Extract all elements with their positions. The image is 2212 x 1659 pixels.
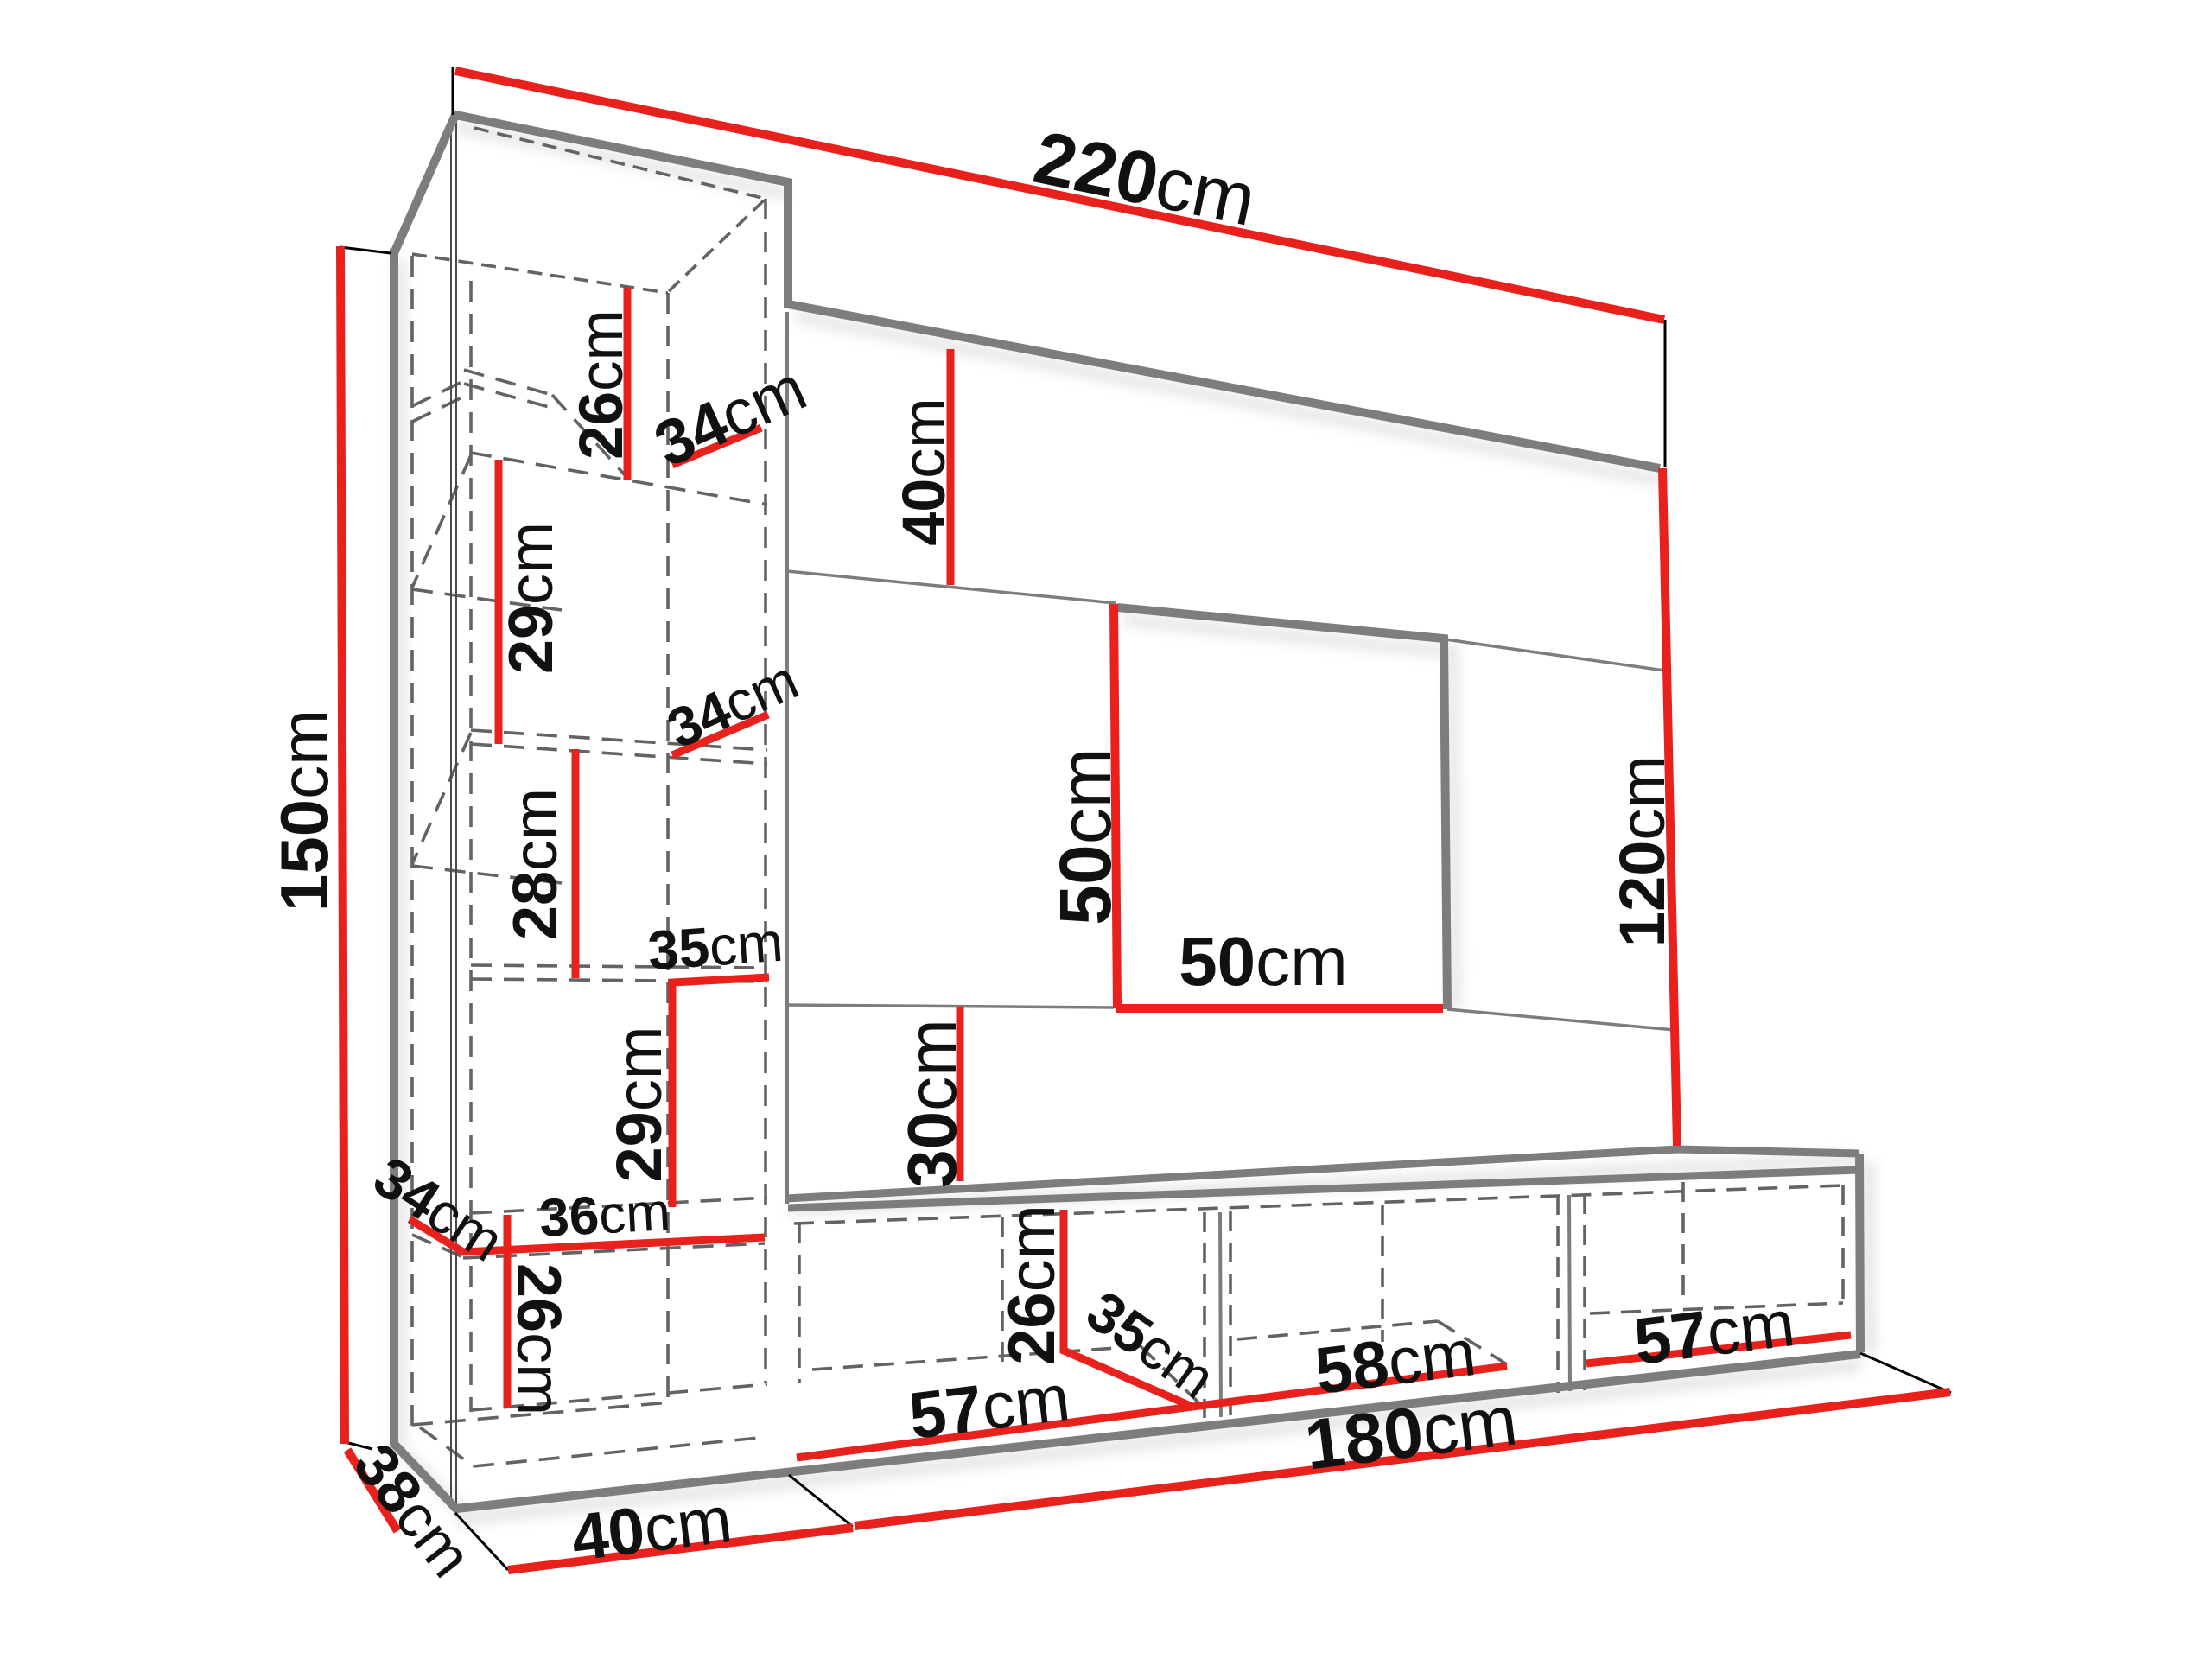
svg-text:50cm: 50cm bbox=[1045, 747, 1126, 925]
svg-text:26cm: 26cm bbox=[995, 1205, 1069, 1365]
svg-text:30cm: 30cm bbox=[893, 1019, 970, 1188]
svg-text:36cm: 36cm bbox=[537, 1182, 671, 1249]
svg-text:40cm: 40cm bbox=[890, 397, 957, 545]
svg-text:120cm: 120cm bbox=[1606, 755, 1678, 947]
svg-text:28cm: 28cm bbox=[501, 788, 570, 940]
svg-text:29cm: 29cm bbox=[603, 1027, 675, 1183]
svg-text:29cm: 29cm bbox=[497, 522, 566, 674]
svg-text:35cm: 35cm bbox=[645, 911, 785, 982]
svg-text:150cm: 150cm bbox=[266, 709, 342, 912]
svg-text:26cm: 26cm bbox=[504, 1263, 573, 1415]
svg-text:26cm: 26cm bbox=[568, 309, 636, 460]
svg-text:50cm: 50cm bbox=[1179, 923, 1348, 1000]
